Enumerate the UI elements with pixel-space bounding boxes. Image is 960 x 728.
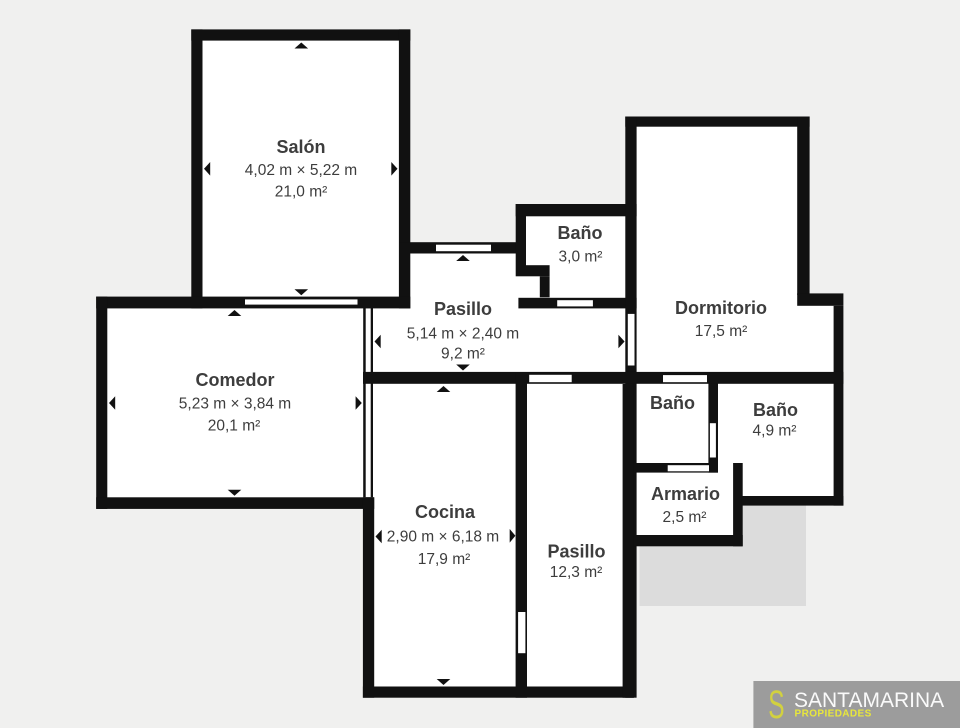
svg-text:Baño: Baño — [650, 393, 695, 413]
svg-text:PROPIEDADES: PROPIEDADES — [795, 709, 872, 720]
svg-text:Baño: Baño — [558, 223, 603, 243]
svg-text:12,3 m²: 12,3 m² — [550, 564, 603, 581]
svg-text:17,5 m²: 17,5 m² — [695, 323, 748, 340]
svg-text:5,14 m × 2,40 m: 5,14 m × 2,40 m — [407, 326, 519, 343]
svg-text:Armario: Armario — [651, 484, 720, 504]
svg-text:Pasillo: Pasillo — [547, 542, 605, 562]
svg-text:Comedor: Comedor — [195, 370, 274, 390]
svg-text:5,23 m × 3,84 m: 5,23 m × 3,84 m — [179, 396, 291, 413]
svg-text:17,9 m²: 17,9 m² — [418, 551, 471, 568]
svg-text:2,90 m × 6,18 m: 2,90 m × 6,18 m — [387, 529, 499, 546]
svg-text:Salón: Salón — [276, 137, 325, 157]
svg-text:4,02 m × 5,22 m: 4,02 m × 5,22 m — [245, 162, 357, 179]
svg-text:3,0 m²: 3,0 m² — [559, 249, 603, 266]
svg-text:Pasillo: Pasillo — [434, 299, 492, 319]
svg-text:Cocina: Cocina — [415, 502, 476, 522]
svg-text:21,0 m²: 21,0 m² — [275, 184, 328, 201]
svg-text:20,1 m²: 20,1 m² — [208, 418, 261, 435]
svg-text:4,9 m²: 4,9 m² — [753, 423, 797, 440]
svg-text:Dormitorio: Dormitorio — [675, 298, 767, 318]
svg-text:S: S — [768, 683, 784, 728]
svg-text:Baño: Baño — [753, 400, 798, 420]
svg-text:2,5 m²: 2,5 m² — [663, 509, 707, 526]
svg-text:9,2 m²: 9,2 m² — [441, 346, 485, 363]
